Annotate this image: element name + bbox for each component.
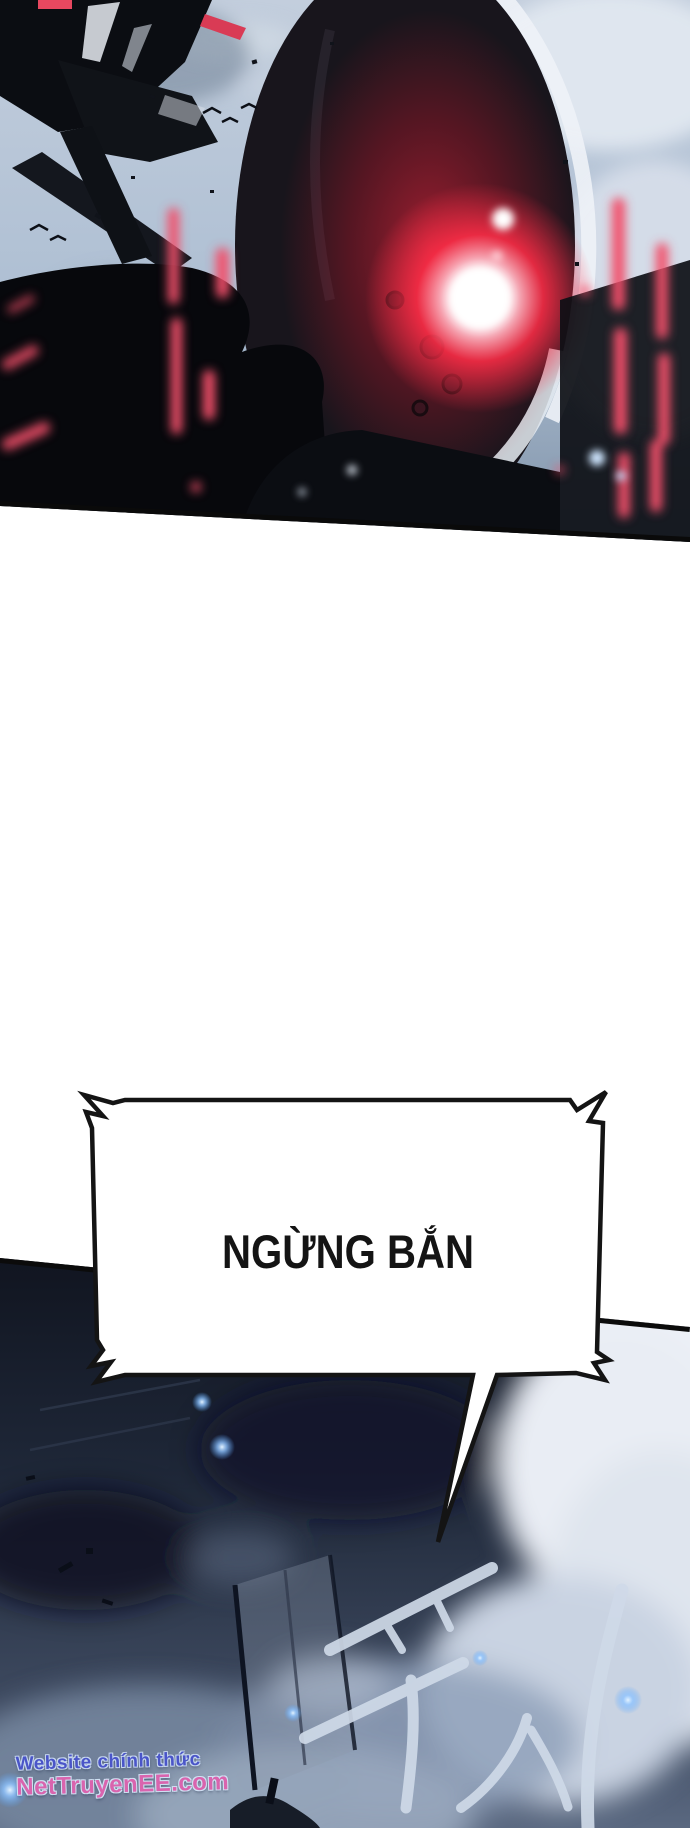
- red-accent: [38, 0, 72, 9]
- white-gutter: [0, 545, 690, 1080]
- eye-core: [448, 266, 512, 330]
- speech-bubble-layer: NGỪNG BẮN: [0, 1080, 690, 1560]
- panel-top-robot: [0, 0, 690, 545]
- speech-bubble-art: NGỪNG BẮN: [0, 1080, 690, 1560]
- speech-bubble: [84, 1092, 609, 1542]
- site-watermark: Website chính thức NetTruyenEE.com: [15, 1749, 229, 1800]
- watermark-line2: NetTruyenEE.com: [16, 1769, 229, 1800]
- panel-top-art: [0, 0, 690, 545]
- eye-glint: [492, 208, 514, 230]
- speech-bubble-text: NGỪNG BẮN: [222, 1225, 474, 1278]
- comic-page: Website chính thức NetTruyenEE.com NGỪNG…: [0, 0, 690, 1828]
